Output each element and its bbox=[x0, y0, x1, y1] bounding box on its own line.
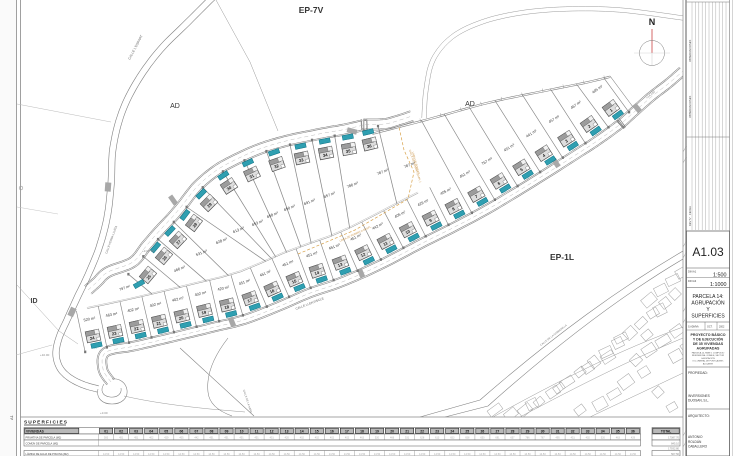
svg-text:DE 35 VIVIENDAS: DE 35 VIVIENDAS bbox=[693, 342, 724, 346]
svg-text:A1.03: A1.03 bbox=[692, 245, 724, 259]
svg-text:451: 451 bbox=[134, 436, 139, 439]
svg-text:PRIVATIVA DE PARCELA (M2): PRIVATIVA DE PARCELA (M2) bbox=[26, 436, 62, 440]
svg-text:A1: A1 bbox=[9, 414, 14, 420]
svg-text:451: 451 bbox=[209, 436, 214, 439]
svg-text:OBSERVACIONES: OBSERVACIONES bbox=[688, 95, 692, 118]
svg-text:SUPERFICIES: SUPERFICIES bbox=[24, 420, 68, 426]
svg-text:17932.80: 17932.80 bbox=[668, 447, 679, 451]
svg-text:16: 16 bbox=[330, 430, 334, 434]
svg-text:CABALLERO: CABALLERO bbox=[688, 445, 708, 449]
svg-text:845.10: 845.10 bbox=[671, 442, 679, 446]
svg-text:451: 451 bbox=[270, 436, 275, 439]
svg-text:420: 420 bbox=[285, 436, 290, 439]
svg-text:34: 34 bbox=[601, 430, 605, 434]
svg-text:23: 23 bbox=[435, 430, 439, 434]
svg-text:613: 613 bbox=[435, 436, 440, 439]
svg-text:24: 24 bbox=[450, 430, 454, 434]
svg-text:767: 767 bbox=[541, 436, 546, 439]
svg-text:PARCELA 14:: PARCELA 14: bbox=[692, 294, 723, 300]
svg-text:04: 04 bbox=[149, 430, 153, 434]
svg-text:11: 11 bbox=[255, 430, 259, 434]
svg-text:15: 15 bbox=[315, 430, 319, 434]
svg-text:07: 07 bbox=[195, 430, 199, 434]
svg-text:36: 36 bbox=[631, 430, 635, 434]
svg-text:03: 03 bbox=[134, 430, 138, 434]
svg-text:650: 650 bbox=[480, 436, 485, 439]
svg-text:REV N° FECHA: REV N° FECHA bbox=[688, 206, 692, 226]
svg-text:30: 30 bbox=[541, 430, 545, 434]
svg-text:17087.70: 17087.70 bbox=[668, 436, 679, 440]
svg-text:451: 451 bbox=[255, 436, 260, 439]
svg-text:531: 531 bbox=[405, 436, 410, 439]
svg-text:402: 402 bbox=[149, 436, 154, 439]
svg-text:402: 402 bbox=[345, 436, 350, 439]
svg-text:AD: AD bbox=[170, 103, 180, 110]
svg-text:+3.00: +3.00 bbox=[100, 411, 108, 415]
svg-text:05: 05 bbox=[164, 430, 168, 434]
svg-text:ID: ID bbox=[31, 298, 38, 305]
svg-text:01: 01 bbox=[104, 430, 108, 434]
svg-text:OCT.: OCT. bbox=[707, 326, 713, 329]
svg-text:Y DE EJECUCIÓN: Y DE EJECUCIÓN bbox=[693, 337, 724, 342]
svg-text:2002: 2002 bbox=[719, 326, 725, 329]
svg-text:657: 657 bbox=[510, 436, 515, 439]
svg-text:ALICANTE: ALICANTE bbox=[703, 362, 714, 365]
svg-text:LÁMINA DE AGUA DE PISCINA (M2): LÁMINA DE AGUA DE PISCINA (M2) bbox=[26, 452, 69, 456]
svg-text:10: 10 bbox=[240, 430, 244, 434]
svg-text:DIN A3: DIN A3 bbox=[688, 279, 697, 283]
svg-text:13: 13 bbox=[285, 430, 289, 434]
svg-text:19: 19 bbox=[375, 430, 379, 434]
svg-text:PARCELA 14, FASE 1 COMPLEJO: PARCELA 14, FASE 1 COMPLEJO bbox=[692, 352, 725, 355]
svg-text:N: N bbox=[649, 17, 656, 27]
svg-text:463: 463 bbox=[360, 436, 365, 439]
svg-text:520: 520 bbox=[601, 436, 606, 439]
svg-text:653: 653 bbox=[450, 436, 455, 439]
svg-text:32: 32 bbox=[571, 430, 575, 434]
svg-text:402: 402 bbox=[330, 436, 335, 439]
svg-text:06: 06 bbox=[180, 430, 184, 434]
svg-text:08: 08 bbox=[210, 430, 214, 434]
svg-text:451: 451 bbox=[224, 436, 229, 439]
svg-text:18: 18 bbox=[360, 430, 364, 434]
svg-text:35: 35 bbox=[616, 430, 620, 434]
svg-text:ARQUITECTO:: ARQUITECTO: bbox=[688, 414, 710, 418]
svg-text:429: 429 bbox=[164, 436, 169, 439]
svg-text:AD: AD bbox=[465, 101, 475, 108]
svg-text:DUOSAN, S.L.: DUOSAN, S.L. bbox=[688, 399, 709, 403]
svg-text:02: 02 bbox=[119, 430, 123, 434]
svg-text:EP-1L: EP-1L bbox=[550, 252, 574, 262]
svg-text:22: 22 bbox=[420, 430, 424, 434]
svg-text:O LLOMERAL DE FONTCALENT,: O LLOMERAL DE FONTCALENT, bbox=[692, 360, 724, 363]
svg-text:TOTAL: TOTAL bbox=[661, 430, 671, 434]
svg-text:405: 405 bbox=[179, 436, 184, 439]
svg-text:SUPERFICIES: SUPERFICIES bbox=[691, 314, 725, 320]
svg-text:507.50: 507.50 bbox=[671, 452, 679, 456]
svg-text:EP-7V: EP-7V bbox=[299, 5, 324, 15]
svg-text:21: 21 bbox=[405, 430, 409, 434]
svg-text:PROPIEDAD:: PROPIEDAD: bbox=[688, 371, 708, 375]
svg-text:OBSERVACIONES: OBSERVACIONES bbox=[688, 39, 692, 62]
svg-text:14: 14 bbox=[300, 430, 304, 434]
svg-text:520: 520 bbox=[375, 436, 380, 439]
svg-text:DIN A1: DIN A1 bbox=[688, 270, 697, 274]
svg-text:442: 442 bbox=[194, 436, 199, 439]
svg-text:12: 12 bbox=[270, 430, 274, 434]
svg-text:S.ADMVA: S.ADMVA bbox=[688, 326, 699, 329]
svg-text:27: 27 bbox=[496, 430, 500, 434]
svg-text:466: 466 bbox=[390, 436, 395, 439]
svg-text:628: 628 bbox=[420, 436, 425, 439]
svg-text:495: 495 bbox=[556, 436, 561, 439]
svg-text:451: 451 bbox=[119, 436, 124, 439]
svg-text:ROLDÁN: ROLDÁN bbox=[688, 440, 702, 444]
svg-text:INVERSIONES: INVERSIONES bbox=[688, 394, 710, 398]
svg-text:ANTONIO: ANTONIO bbox=[688, 435, 703, 439]
svg-text:691: 691 bbox=[495, 436, 500, 439]
svg-text:28: 28 bbox=[511, 430, 515, 434]
svg-text:+10.00: +10.00 bbox=[40, 353, 50, 357]
svg-text:402: 402 bbox=[300, 436, 305, 439]
svg-text:VIVIENDAS: VIVIENDAS bbox=[26, 430, 45, 434]
svg-text:25: 25 bbox=[465, 430, 469, 434]
svg-text:RESIDENCIAL JORALE, SECTOR: RESIDENCIAL JORALE, SECTOR bbox=[692, 354, 725, 357]
svg-text:451: 451 bbox=[571, 436, 576, 439]
svg-text:451: 451 bbox=[240, 436, 245, 439]
svg-text:31: 31 bbox=[556, 430, 560, 434]
svg-text:429: 429 bbox=[631, 436, 636, 439]
svg-text:402: 402 bbox=[586, 436, 591, 439]
svg-text:33: 33 bbox=[586, 430, 590, 434]
svg-text:20: 20 bbox=[390, 430, 394, 434]
svg-text:09: 09 bbox=[225, 430, 229, 434]
svg-text:786: 786 bbox=[525, 436, 530, 439]
svg-text:1:1000: 1:1000 bbox=[710, 282, 727, 288]
svg-text:PROYECTO BÁSICO: PROYECTO BÁSICO bbox=[690, 332, 725, 337]
svg-text:+3.00 TR: +3.00 TR bbox=[142, 249, 155, 253]
svg-text:AGRUPADAS: AGRUPADAS bbox=[697, 347, 720, 351]
svg-text:17: 17 bbox=[345, 430, 349, 434]
svg-text:LA ESTACIÓN: LA ESTACIÓN bbox=[701, 357, 715, 360]
svg-text:500: 500 bbox=[104, 436, 109, 439]
svg-text:26: 26 bbox=[481, 430, 485, 434]
svg-text:AGRUPACIÓN: AGRUPACIÓN bbox=[691, 300, 725, 307]
svg-text:658: 658 bbox=[465, 436, 470, 439]
svg-text:402: 402 bbox=[315, 436, 320, 439]
svg-text:463: 463 bbox=[616, 436, 621, 439]
svg-text:29: 29 bbox=[526, 430, 530, 434]
